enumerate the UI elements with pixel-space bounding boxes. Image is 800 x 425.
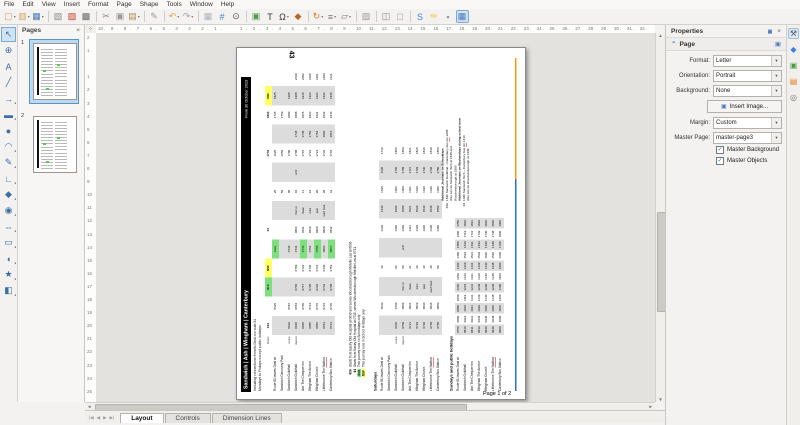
print-button-icon: ▩ <box>82 11 91 22</box>
scroll-up-icon[interactable]: ▲ <box>656 33 665 38</box>
stop-label: Ash The Chequer Inn <box>407 335 414 391</box>
time-cell: 21 <box>407 257 414 276</box>
stop-label: Sandwich Guildhall <box>462 335 469 391</box>
time-cell <box>314 163 321 182</box>
time-cell: 1519 <box>462 250 469 261</box>
time-cell: each hour <box>321 201 328 220</box>
time-cell: 0829 <box>414 296 421 315</box>
time-cell: 1748 <box>490 229 497 240</box>
transformations-button[interactable]: ↻▾ <box>312 10 325 23</box>
time-cell: 0655 <box>307 316 314 335</box>
time-cell: 1600 <box>497 250 504 261</box>
undo-button-dropdown-icon[interactable]: ▾ <box>177 14 179 19</box>
drawing-canvas[interactable]: Sandwich | Ash | Wingham | Canterbury Fr… <box>96 33 655 402</box>
timetable-row: Sandwich Guildhall0819091910191119121913… <box>462 218 469 391</box>
redo-button[interactable]: ↷▾ <box>182 10 195 23</box>
time-cell: 0753 <box>328 258 335 277</box>
masterpage-select[interactable]: master-page3▼ <box>713 132 782 144</box>
additional-journeys-notes: Additional Journeys on Schooldays43A1530… <box>441 75 471 215</box>
field-label: Orientation: <box>666 73 713 79</box>
time-cell: 0850 <box>455 314 462 325</box>
time-cell: 1521 <box>407 199 414 218</box>
time-cell: 0738 <box>428 316 435 335</box>
stop-label: Sandwich Guildhallarrive <box>393 335 400 391</box>
menu-tools[interactable]: Tools <box>167 1 182 8</box>
time-cell: 0739 <box>321 258 328 277</box>
document-page[interactable]: Sandwich | Ash | Wingham | Canterbury Fr… <box>236 47 526 400</box>
time-cell: 1540 <box>483 250 490 261</box>
time-cell: 0828 <box>321 220 328 239</box>
rectangle-tool-dropdown-icon[interactable]: ◂ <box>14 117 16 121</box>
menu-view[interactable]: View <box>42 1 56 8</box>
menu-help[interactable]: Help <box>221 1 234 8</box>
insert-textbox-button[interactable]: T <box>264 10 277 23</box>
clone-formatting-button[interactable]: ✎ <box>148 10 161 23</box>
time-cell: 1619 <box>462 239 469 250</box>
time-cell: 1825 <box>272 86 279 105</box>
time-cell: 1625 <box>272 144 279 163</box>
time-cell: 0750 <box>435 316 442 335</box>
orange-rule-line <box>515 58 517 179</box>
time-cell: 1730 <box>421 160 428 179</box>
field-label: Format: <box>666 58 713 64</box>
time-cell: 1509 <box>400 199 407 218</box>
time-cell: 1240 <box>483 282 490 293</box>
note-cell: NSF <box>265 86 272 105</box>
redo-button-dropdown-icon[interactable]: ▾ <box>191 14 193 19</box>
basic-shapes-tool[interactable]: ◆◂ <box>1 187 16 202</box>
stop-label: Ash The Chequer Inn <box>300 335 307 391</box>
menu-window[interactable]: Window <box>190 1 213 8</box>
stars-tool[interactable]: ★◂ <box>1 267 16 282</box>
time-cell <box>272 316 279 335</box>
time-cell: 1609 <box>400 180 407 199</box>
time-cell: 1319 <box>462 271 469 282</box>
time-cell <box>286 258 293 277</box>
pages-panel-close-icon[interactable]: × <box>76 27 80 34</box>
stop-label: Sandwich Guildhalldepart <box>400 335 407 391</box>
arrow-tool[interactable]: →◂ <box>1 91 16 106</box>
helplines-button[interactable]: # <box>216 10 229 23</box>
stop-label: Sandwich Guildhalldepart <box>293 335 300 391</box>
time-cell: 1908 <box>293 86 300 105</box>
timetable-row: Sandwich Guildhallarrive0619064607300017… <box>286 67 293 391</box>
text-tool[interactable]: A <box>1 59 16 74</box>
toolbar-separator <box>198 11 199 22</box>
time-cell: 1721 <box>407 160 414 179</box>
time-cell: 1715 <box>300 144 307 163</box>
time-cell: 1725 <box>272 105 279 124</box>
properties-close-icon[interactable]: × <box>777 28 781 35</box>
time-cell: 25 <box>272 182 279 201</box>
time-cell: 1708 <box>293 144 300 163</box>
copy-button-icon: ▣ <box>116 11 125 22</box>
format-select[interactable]: Letter▼ <box>713 55 782 67</box>
timetable-title: Sandwich | Ash | Wingham | Canterbury <box>243 290 249 389</box>
time-cell: 0656 <box>314 316 321 335</box>
time-cell <box>286 163 293 182</box>
time-cell: 1231 <box>469 282 476 293</box>
threed-objects-tool[interactable]: ◧◂ <box>1 283 16 298</box>
callouts-tool[interactable]: ◖◂ <box>1 251 16 266</box>
time-cell: 0729 <box>414 316 421 335</box>
block-arrows-tool[interactable]: ⇔◂ <box>1 219 16 234</box>
export-pdf-button[interactable]: ▨ <box>66 10 79 23</box>
time-cell: 1802 <box>321 124 328 143</box>
time-cell: 1131 <box>469 292 476 303</box>
new-button[interactable]: ▢▾ <box>4 10 17 23</box>
standard-toolbar: ▢▾▥▾▦▾▧▨▩✂▣▤▾✎↶▾↷▾▦#⊙▣TΩ▾◆↻▾≡▾▱▾▨◫◻S✏▪▦ <box>0 9 800 25</box>
note-cell: NSF <box>265 258 272 277</box>
stop-label: Littlebourne The Nailbox <box>490 335 497 391</box>
helplines-button-icon: # <box>219 12 224 22</box>
section-collapse-icon[interactable]: ⌃ <box>671 40 676 48</box>
copy-button[interactable]: ▣ <box>114 10 127 23</box>
grid-button-icon: ▦ <box>204 11 213 22</box>
export-button[interactable]: ▧ <box>52 10 65 23</box>
scroll-down-icon[interactable]: ▼ <box>656 397 665 402</box>
dropdown-arrow-icon[interactable]: ▼ <box>771 118 781 128</box>
time-cell: 0731 <box>314 258 321 277</box>
time-cell <box>286 67 293 86</box>
scroll-right-icon[interactable]: ► <box>649 403 653 410</box>
sunday-table: Route 81 leaves Deal at07500850095010501… <box>455 218 504 391</box>
checkbox-master-background[interactable]: ✓Master Background <box>716 146 786 154</box>
flowchart-tool[interactable]: ▭◂ <box>1 235 16 250</box>
note-cell <box>265 239 272 258</box>
time-cell: 29 <box>414 257 421 276</box>
arrange-button[interactable]: ▱▾ <box>340 10 353 23</box>
time-cell: 1340 <box>483 271 490 282</box>
timetable-row: Sandwich Discovery Park5916591759 <box>279 67 286 391</box>
curve-tool[interactable]: ✎◂ <box>1 155 16 170</box>
page-thumbnail-preview <box>33 43 77 100</box>
time-cell: 1900 <box>497 218 504 229</box>
symbol-shapes-tool[interactable]: ◉◂ <box>1 203 16 218</box>
page-section-title: Page <box>679 41 695 48</box>
basic-shapes-tool-dropdown-icon[interactable]: ◂ <box>14 197 16 201</box>
tab-nav-button[interactable]: ▶ <box>103 415 106 421</box>
block-arrows-tool-dropdown-icon[interactable]: ◂ <box>14 229 16 233</box>
field-label: Master Page: <box>666 135 713 141</box>
align-button[interactable]: ≡▾ <box>326 10 339 23</box>
note-cell: 44 <box>265 220 272 239</box>
dropdown-arrow-icon[interactable]: ▼ <box>771 133 781 143</box>
time-cell: 1630 <box>421 180 428 199</box>
note-cell <box>265 201 272 220</box>
time-cell: 1630 <box>379 160 386 179</box>
tab-navigation-buttons[interactable]: |◀◀▶▶| <box>85 415 120 423</box>
time-cell: 0848 <box>490 324 497 335</box>
time-cell: 1846 <box>328 105 335 124</box>
time-cell: 0821 <box>407 296 414 315</box>
time-cell <box>386 238 393 257</box>
menu-bar: FileEditViewInsertFormatPageShapeToolsWi… <box>0 0 800 9</box>
saturday-table: Route 81 leaves Deal at06303013301430153… <box>379 141 442 391</box>
styles-deck-icon[interactable]: ▤ <box>788 76 799 87</box>
time-cell: 11 <box>300 182 307 201</box>
route-number-badge: 43 <box>287 51 294 59</box>
save-button-dropdown-icon[interactable]: ▾ <box>42 14 44 19</box>
time-cell <box>279 201 286 220</box>
time-cell: 1430 <box>379 199 386 218</box>
time-cell: these <box>407 277 414 296</box>
open-button-dropdown-icon[interactable]: ▾ <box>28 14 30 19</box>
time-cell: 0723 <box>321 297 328 316</box>
insert-image-button[interactable]: ▣ <box>250 10 263 23</box>
zoom-button[interactable]: ⊙ <box>230 10 243 23</box>
paste-button[interactable]: ▤▾ <box>128 10 141 23</box>
margin-select[interactable]: Custom▼ <box>713 117 782 129</box>
glue-points-button-icon: ▪ <box>446 12 449 22</box>
time-cell <box>428 238 435 257</box>
time-cell: 0755 <box>314 239 321 258</box>
timetable-row: Route 81 leaves Deal at06303013301430153… <box>379 141 386 391</box>
line-tool[interactable]: ╱ <box>1 75 16 90</box>
weekday-table: Notes43ASchNSF4417041804NSFRoute 81 leav… <box>265 67 335 391</box>
time-cell: 1606 <box>393 180 400 199</box>
time-cell: 1829 <box>414 141 421 160</box>
connector-tool[interactable]: ∟◂ <box>1 171 16 186</box>
gallery-deck-icon[interactable]: ▣ <box>788 60 799 71</box>
timetable-title-bar: Sandwich | Ash | Wingham | Canterbury Fr… <box>241 77 251 392</box>
vertical-scrollbar[interactable]: ▲ ▼ <box>655 33 665 402</box>
time-cell: 1638 <box>428 180 435 199</box>
time-cell: 1506 <box>393 199 400 218</box>
time-cell: 1732 <box>321 144 328 163</box>
dropdown-arrow-icon[interactable]: ▼ <box>771 71 781 81</box>
time-cell: 06 <box>393 257 400 276</box>
shapes-deck-icon[interactable]: ◆ <box>788 44 799 55</box>
timetable-subtitle-1: Including connections from/to Deal on ro… <box>254 319 258 391</box>
time-cell: 0715 <box>314 297 321 316</box>
time-cell: 0754 <box>307 239 314 258</box>
time-cell <box>272 220 279 239</box>
callouts-tool-dropdown-icon[interactable]: ◂ <box>14 261 16 265</box>
time-cell: 30 <box>379 257 386 276</box>
paste-button-dropdown-icon[interactable]: ▾ <box>138 14 140 19</box>
fontwork-button[interactable]: S <box>414 10 427 23</box>
freeform-highlight-button[interactable]: ✏ <box>428 10 441 23</box>
time-cell: 1031 <box>469 303 476 314</box>
time-cell <box>279 67 286 86</box>
export-pdf-button-icon: ▨ <box>68 11 77 22</box>
time-cell: 1139 <box>476 292 483 303</box>
navigator-deck-icon[interactable]: ◎ <box>788 92 799 103</box>
time-cell: 0803 <box>321 239 328 258</box>
time-cell: 1440 <box>483 261 490 272</box>
print-button[interactable]: ▩ <box>80 10 93 23</box>
tab-nav-button[interactable]: |◀ <box>89 415 94 421</box>
time-cell: 1830 <box>421 141 428 160</box>
background-select[interactable]: None▼ <box>713 85 782 97</box>
checkbox-master-objects[interactable]: ✓Master Objects <box>716 157 786 165</box>
scroll-left-icon[interactable]: ◄ <box>87 403 91 410</box>
transformations-button-dropdown-icon[interactable]: ▾ <box>321 14 323 19</box>
time-cell <box>286 278 293 297</box>
arc-tool[interactable]: ◠◂ <box>1 139 16 154</box>
save-button[interactable]: ▦▾ <box>32 10 45 23</box>
zoom-button-icon: ⊙ <box>232 11 240 22</box>
time-cell: 1119 <box>462 292 469 303</box>
tab-dimension-lines[interactable]: Dimension Lines <box>212 413 282 423</box>
time-cell: 0706 <box>393 296 400 315</box>
timetable-row: Route 81 leaves Deal at07500850095010501… <box>455 218 462 391</box>
time-cell <box>279 297 286 316</box>
time-cell: 1429 <box>414 219 421 238</box>
time-cell: 1421 <box>407 219 414 238</box>
menu-shape[interactable]: Shape <box>140 1 159 8</box>
symbol-shapes-tool-dropdown-icon[interactable]: ◂ <box>14 213 16 217</box>
time-cell <box>379 238 386 257</box>
tab-controls[interactable]: Controls <box>165 413 211 423</box>
dropdown-arrow-icon[interactable]: ▼ <box>771 56 781 66</box>
time-cell: 0819 <box>307 220 314 239</box>
time-cell: 0714 <box>328 316 335 335</box>
time-cell: 0746 <box>300 239 307 258</box>
field-value: Letter <box>716 58 731 64</box>
time-cell <box>300 163 307 182</box>
fontwork-button-icon: S <box>417 12 423 22</box>
align-button-dropdown-icon[interactable]: ▾ <box>334 14 336 19</box>
time-cell: 0717 <box>300 278 307 297</box>
time-cell: 0939 <box>476 314 483 325</box>
time-cell: 0831 <box>469 324 476 335</box>
stars-tool-dropdown-icon[interactable]: ◂ <box>14 277 16 281</box>
time-cell: until <box>400 238 407 257</box>
time-cell <box>286 201 293 220</box>
new-button-dropdown-icon[interactable]: ▾ <box>14 14 16 19</box>
time-cell: 1239 <box>476 282 483 293</box>
menu-edit[interactable]: Edit <box>22 1 33 8</box>
time-cell <box>321 163 328 182</box>
dropdown-arrow-icon[interactable]: ▼ <box>771 86 781 96</box>
time-cell <box>286 124 293 143</box>
menu-format[interactable]: Format <box>88 1 109 8</box>
time-cell <box>272 163 279 182</box>
properties-deck-icon[interactable]: ⚒ <box>788 28 799 39</box>
time-cell: 1200 <box>497 292 504 303</box>
time-cell: 2040 <box>293 67 300 86</box>
time-cell <box>272 278 279 297</box>
section-more-options-icon[interactable]: ▣ <box>775 40 781 48</box>
time-cell: 1915 <box>300 86 307 105</box>
menu-insert[interactable]: Insert <box>64 1 80 8</box>
arrange-button-dropdown-icon[interactable]: ▾ <box>349 14 351 19</box>
curve-tool-dropdown-icon[interactable]: ◂ <box>14 165 16 169</box>
arrow-tool-dropdown-icon[interactable]: ◂ <box>14 101 16 105</box>
time-cell: 1739 <box>476 229 483 240</box>
timetable-row: Canterbury Bus Station071407350748075308… <box>328 67 335 391</box>
time-cell: 1738 <box>293 124 300 143</box>
time-cell: 1823 <box>307 105 314 124</box>
page-thumbnail-1[interactable]: 1 <box>30 40 78 103</box>
checkbox-icon[interactable]: ✓ <box>716 157 724 165</box>
time-cell: 1431 <box>469 261 476 272</box>
time-cell: 0809 <box>400 296 407 315</box>
open-button[interactable]: ▥▾ <box>18 10 31 23</box>
threed-objects-tool-dropdown-icon[interactable]: ◂ <box>14 293 16 297</box>
tab-layout[interactable]: Layout <box>120 413 163 423</box>
group-button[interactable]: ◫ <box>380 10 393 23</box>
note-cell <box>265 124 272 143</box>
time-cell: 0726 <box>314 278 321 297</box>
time-cell: 1808 <box>293 105 300 124</box>
menu-page[interactable]: Page <box>117 1 132 8</box>
show-draw-functions-button[interactable]: ▦ <box>456 10 469 23</box>
time-cell: 1731 <box>469 229 476 240</box>
notes-row: Notes43ASchNSF4417041804NSF <box>265 67 272 391</box>
time-cell <box>279 316 286 335</box>
menu-file[interactable]: File <box>4 1 14 8</box>
undo-button[interactable]: ↶▾ <box>168 10 181 23</box>
timetable-effective-date: From 30 October 2023 <box>244 80 249 118</box>
timetable-subtitle-2: Mondays to Fridays except public holiday… <box>259 325 263 391</box>
time-cell: 1900 <box>286 86 293 105</box>
time-cell: 30 <box>421 257 428 276</box>
time-cell: 0840 <box>483 324 490 335</box>
zoom-tool[interactable]: ⊕ <box>1 43 16 58</box>
time-cell <box>435 238 442 257</box>
connector-tool-dropdown-icon[interactable]: ◂ <box>14 181 16 185</box>
time-cell: 04 <box>293 182 300 201</box>
ungroup-button[interactable]: ◻ <box>394 10 407 23</box>
time-cell: 1819 <box>462 218 469 229</box>
time-cell: 0730 <box>286 239 293 258</box>
insert-media-button[interactable]: ◆ <box>292 10 305 23</box>
special-character-button[interactable]: Ω▾ <box>278 10 291 23</box>
glue-points-button[interactable]: ▪ <box>442 10 455 23</box>
select-tool[interactable]: ↖ <box>1 27 16 42</box>
grid-button[interactable]: ▦ <box>202 10 215 23</box>
time-cell: 0619 <box>286 316 293 335</box>
ellipse-tool[interactable]: ● <box>1 123 16 138</box>
stop-label: Wingham The Anchor <box>414 335 421 391</box>
time-cell: 1350 <box>455 261 462 272</box>
time-cell: 0948 <box>490 314 497 325</box>
time-cell: 1439 <box>476 261 483 272</box>
time-cell: 0734 <box>321 278 328 297</box>
time-cell: 1639 <box>476 239 483 250</box>
pages-panel-title: Pages <box>22 27 41 34</box>
time-cell: 0950 <box>455 303 462 314</box>
tab-nav-button[interactable]: ▶| <box>110 415 115 421</box>
panel-dock-icon[interactable]: ▣ <box>768 29 773 35</box>
time-cell: 1821 <box>407 141 414 160</box>
clone-formatting-button-icon: ✎ <box>150 11 158 22</box>
horizontal-scrollbar[interactable]: ◄ ► <box>85 402 655 410</box>
page-thumbnail-2[interactable]: 2 <box>30 113 78 176</box>
checkbox-icon[interactable]: ✓ <box>716 146 724 154</box>
cut-button[interactable]: ✂ <box>100 10 113 23</box>
note-cell: 1704 <box>265 144 272 163</box>
rectangle-tool[interactable]: ▬◂ <box>1 107 16 122</box>
tab-nav-button[interactable]: ◀ <box>97 415 100 421</box>
flowchart-tool-dropdown-icon[interactable]: ◂ <box>14 245 16 249</box>
note-cell <box>265 297 272 316</box>
time-cell: 0750 <box>455 324 462 335</box>
time-cell <box>386 296 393 315</box>
time-cell: 1339 <box>476 271 483 282</box>
time-cell: 1809 <box>400 141 407 160</box>
arc-tool-dropdown-icon[interactable]: ◂ <box>14 149 16 153</box>
insert-image-button[interactable]: ▣Insert Image... <box>707 100 782 113</box>
special-character-button-dropdown-icon[interactable]: ▾ <box>287 14 289 19</box>
shadow-button[interactable]: ▨ <box>360 10 373 23</box>
time-cell: 1838 <box>428 141 435 160</box>
time-cell: 1348 <box>490 271 497 282</box>
orientation-select[interactable]: Portrait▼ <box>713 70 782 82</box>
